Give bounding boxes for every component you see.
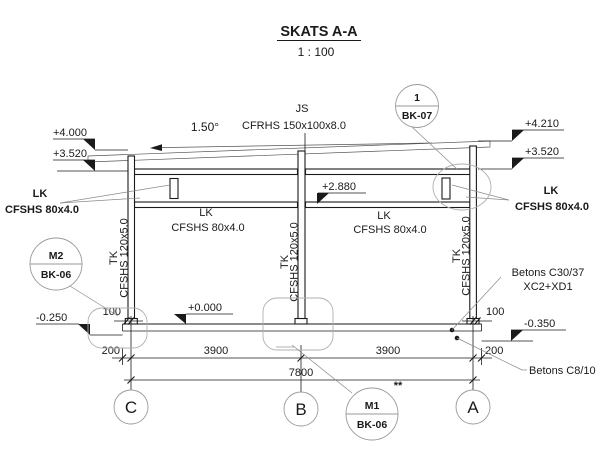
- connection-plate-right: [442, 178, 450, 199]
- balloon-m1: M1 BK-06: [292, 345, 398, 440]
- level-found-right-text: -0.350: [524, 318, 555, 330]
- level-right-mid-text: +3.520: [525, 146, 559, 158]
- lk-right-label-2: CFSHS 80x4.0: [515, 201, 589, 213]
- page-title: SKATS A-A: [280, 24, 358, 40]
- connection-plate-left: [170, 179, 178, 199]
- dim-3900-left: 3900: [204, 345, 228, 357]
- lk-bay-right-1: LK: [377, 210, 391, 222]
- lk-bay-left-1: LK: [199, 207, 213, 219]
- dim-100-right: 100: [486, 306, 504, 318]
- tk-label-a-2: CFSHS 120x5.0: [460, 216, 472, 295]
- concrete-main-label-2: XC2+XD1: [523, 281, 572, 293]
- balloon-m2-bottom: BK-06: [41, 269, 72, 281]
- level-left-mid-text: +3.520: [53, 148, 87, 160]
- grid-label-c: C: [125, 398, 137, 417]
- drawing-scale: 1 : 100: [298, 45, 335, 59]
- level-found-right-marker-icon: [511, 330, 523, 341]
- grid-label-a: A: [467, 398, 479, 417]
- lk-bay-left-2: CFSHS 80x4.0: [171, 222, 244, 234]
- purlin-lower-right: [306, 202, 471, 208]
- lk-left-margin-group: LK CFSHS 80x4.0: [5, 185, 170, 216]
- drawing-sheet: SKATS A-A 1 : 100 1.50° JS CFRHS 150x100…: [0, 0, 616, 458]
- lk-bay-right-2: CFSHS 80x4.0: [353, 224, 426, 236]
- balloon-m2-leader: [70, 286, 118, 316]
- level-mid-rail-text: +2.880: [322, 181, 356, 193]
- balloon-bk07-top: 1: [414, 92, 420, 104]
- js-beam-label-1: JS: [296, 103, 309, 115]
- dim-3900-right: 3900: [376, 345, 400, 357]
- concrete-lean-label: Betons C8/10: [529, 365, 596, 377]
- floor-slab: [123, 324, 482, 331]
- level-floor-marker-icon: [174, 314, 186, 324]
- lk-right-label-1: LK: [544, 185, 559, 197]
- roof-beam-js: [88, 141, 490, 162]
- purlin-lower-left: [135, 202, 298, 208]
- elevation-left-top: +4.000: [53, 127, 128, 150]
- js-beam-label-2: CFRHS 150x100x8.0: [242, 120, 346, 132]
- elevation-right-top: +4.210: [478, 118, 564, 141]
- balloon-bk07-bottom: BK-07: [402, 110, 433, 122]
- title-block: SKATS A-A 1 : 100: [277, 24, 361, 59]
- dim-200-left: 200: [102, 345, 120, 357]
- section-drawing-svg: SKATS A-A 1 : 100 1.50° JS CFRHS 150x100…: [0, 0, 616, 458]
- balloon-m2: M2 BK-06: [30, 238, 118, 316]
- lk-left-leader-1: [60, 185, 170, 203]
- level-left-mid-marker-icon: [83, 160, 95, 171]
- level-floor-text: +0.000: [188, 302, 222, 314]
- slope-label: 1.50°: [191, 120, 219, 134]
- purlin-upper-right: [306, 169, 471, 175]
- level-left-top-text: +4.000: [53, 127, 87, 139]
- level-right-top-marker-icon: [512, 130, 524, 141]
- elevation-left-mid: +3.520: [53, 148, 128, 171]
- level-right-mid-marker-icon: [512, 158, 524, 169]
- slope-line: [160, 143, 432, 148]
- elevation-floor: +0.000: [174, 302, 233, 324]
- elevation-mid-rail: +2.880: [317, 181, 366, 204]
- slope-arrow-icon: [150, 144, 162, 151]
- balloon-m1-top: M1: [365, 400, 380, 412]
- grid-label-b: B: [295, 400, 306, 419]
- elevation-found-right: -0.350: [482, 318, 567, 341]
- balloon-bk07: 1 BK-07: [396, 85, 459, 171]
- lk-left-label-2: CFSHS 80x4.0: [5, 204, 79, 216]
- dim-200-right: 200: [485, 345, 503, 357]
- level-found-left-text: -0.250: [36, 312, 67, 324]
- balloon-m1-bottom: BK-06: [357, 419, 388, 431]
- concrete-main-label-1: Betons C30/37: [512, 267, 585, 279]
- tk-label-b-2: CFSHS 120x5.0: [289, 222, 301, 301]
- footnote-asterisks: **: [394, 380, 403, 392]
- purlin-upper-left: [135, 169, 298, 175]
- elevation-right-mid: +3.520: [478, 146, 564, 169]
- level-right-top-text: +4.210: [525, 118, 559, 130]
- balloon-m2-top: M2: [49, 250, 64, 262]
- lk-left-label-1: LK: [33, 188, 48, 200]
- base-plate-b: [295, 319, 307, 325]
- tk-label-c-2: CFSHS 120x5.0: [119, 218, 131, 297]
